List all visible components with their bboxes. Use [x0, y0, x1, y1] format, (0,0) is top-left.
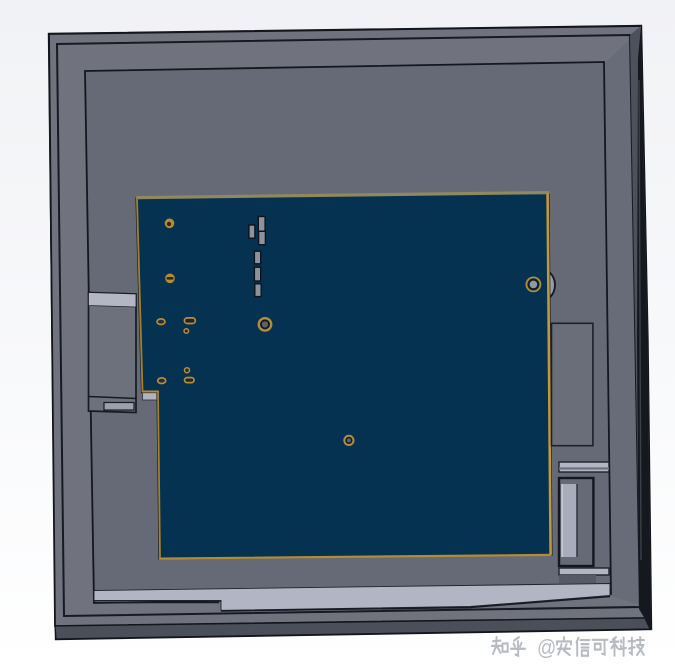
svg-text:@: @ — [537, 636, 556, 661]
